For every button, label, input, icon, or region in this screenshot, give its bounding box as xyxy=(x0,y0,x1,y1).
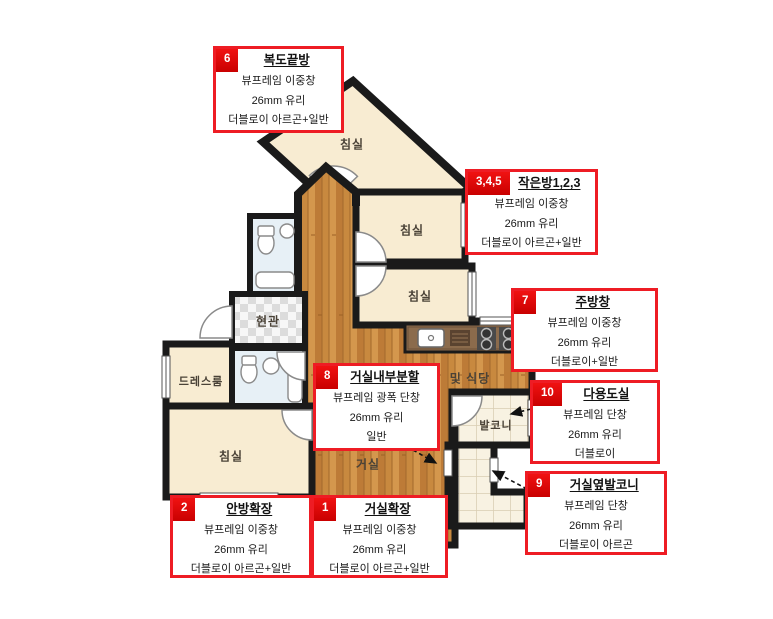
callout-title: 다용도실 xyxy=(562,383,657,406)
spec-line: 뷰프레임 광폭 단창 xyxy=(316,389,437,409)
callout-number-badge: 2 xyxy=(173,498,195,521)
callout-box-3-4-5: 3,4,5 작은방1,2,3 뷰프레임 이중창 26mm 유리 더블로이 아르곤… xyxy=(465,169,598,255)
spec-line: 뷰프레임 이중창 xyxy=(216,72,341,92)
spec-line: 26mm 유리 xyxy=(314,541,445,561)
callout-box-2: 2 안방확장 뷰프레임 이중창 26mm 유리 더블로이 아르곤+일반 xyxy=(170,495,312,578)
spec-line: 26mm 유리 xyxy=(316,409,437,429)
spec-line: 뷰프레임 단창 xyxy=(533,406,657,426)
callout-title: 주방창 xyxy=(536,291,655,314)
callout-number-badge: 10 xyxy=(533,383,562,406)
spec-line: 뷰프레임 이중창 xyxy=(468,195,595,215)
spec-line: 26mm 유리 xyxy=(468,215,595,235)
callout-number-badge: 8 xyxy=(316,366,338,389)
callout-box-9: 9 거실옆발코니 뷰프레임 단창 26mm 유리 더블로이 아르곤 xyxy=(525,471,667,555)
callout-title: 작은방1,2,3 xyxy=(510,172,595,195)
label-dressroom: 드레스룸 xyxy=(179,373,223,389)
spec-line: 26mm 유리 xyxy=(216,92,341,112)
callout-box-7: 7 주방창 뷰프레임 이중창 26mm 유리 더블로이+일반 xyxy=(511,288,658,372)
label-bedroom-master: 침실 xyxy=(219,448,243,465)
callout-title: 거실내부분할 xyxy=(338,366,437,389)
label-bedroom-mid: 침실 xyxy=(400,222,424,239)
spec-line: 뷰프레임 단창 xyxy=(528,497,664,517)
floorplan-infographic: 침실 침실 침실 침실 현관 드레스룸 거실 및 식당 발코니 6 복도끝방 뷰… xyxy=(0,0,773,619)
callout-box-1: 1 거실확장 뷰프레임 이중창 26mm 유리 더블로이 아르곤+일반 xyxy=(311,495,448,578)
label-entrance: 현관 xyxy=(256,313,280,330)
callout-title: 안방확장 xyxy=(195,498,309,521)
callout-number-badge: 3,4,5 xyxy=(468,172,510,195)
callout-number-badge: 7 xyxy=(514,291,536,314)
label-dining: 및 식당 xyxy=(450,370,490,387)
spec-line: 더블로이 아르곤+일반 xyxy=(314,560,445,580)
label-living: 거실 xyxy=(356,456,380,473)
spec-line: 일반 xyxy=(316,428,437,448)
spec-line: 더블로이 아르곤+일반 xyxy=(216,111,341,131)
spec-line: 더블로이 아르곤 xyxy=(528,536,664,556)
callout-number-badge: 9 xyxy=(528,474,550,497)
callout-box-8: 8 거실내부분할 뷰프레임 광폭 단창 26mm 유리 일반 xyxy=(313,363,440,451)
label-balcony: 발코니 xyxy=(479,417,512,433)
sink xyxy=(418,329,444,347)
spec-line: 더블로이 xyxy=(533,445,657,465)
spec-line: 더블로이 아르곤+일반 xyxy=(173,560,309,580)
callout-title: 복도끝방 xyxy=(238,49,341,72)
callout-title: 거실옆발코니 xyxy=(550,474,664,497)
spec-line: 26mm 유리 xyxy=(514,334,655,354)
spec-line: 26mm 유리 xyxy=(533,426,657,446)
label-bedroom-lower: 침실 xyxy=(408,288,432,305)
spec-line: 뷰프레임 이중창 xyxy=(314,521,445,541)
spec-line: 26mm 유리 xyxy=(528,517,664,537)
callout-number-badge: 1 xyxy=(314,498,336,521)
spec-line: 뷰프레임 이중창 xyxy=(514,314,655,334)
spec-line: 뷰프레임 이중창 xyxy=(173,521,309,541)
spec-line: 더블로이+일반 xyxy=(514,353,655,373)
callout-title: 거실확장 xyxy=(336,498,445,521)
spec-line: 더블로이 아르곤+일반 xyxy=(468,234,595,254)
callout-box-6: 6 복도끝방 뷰프레임 이중창 26mm 유리 더블로이 아르곤+일반 xyxy=(213,46,344,133)
label-bedroom-top: 침실 xyxy=(340,136,364,153)
spec-line: 26mm 유리 xyxy=(173,541,309,561)
callout-box-10: 10 다용도실 뷰프레임 단창 26mm 유리 더블로이 xyxy=(530,380,660,464)
callout-number-badge: 6 xyxy=(216,49,238,72)
room-utility xyxy=(448,445,527,526)
